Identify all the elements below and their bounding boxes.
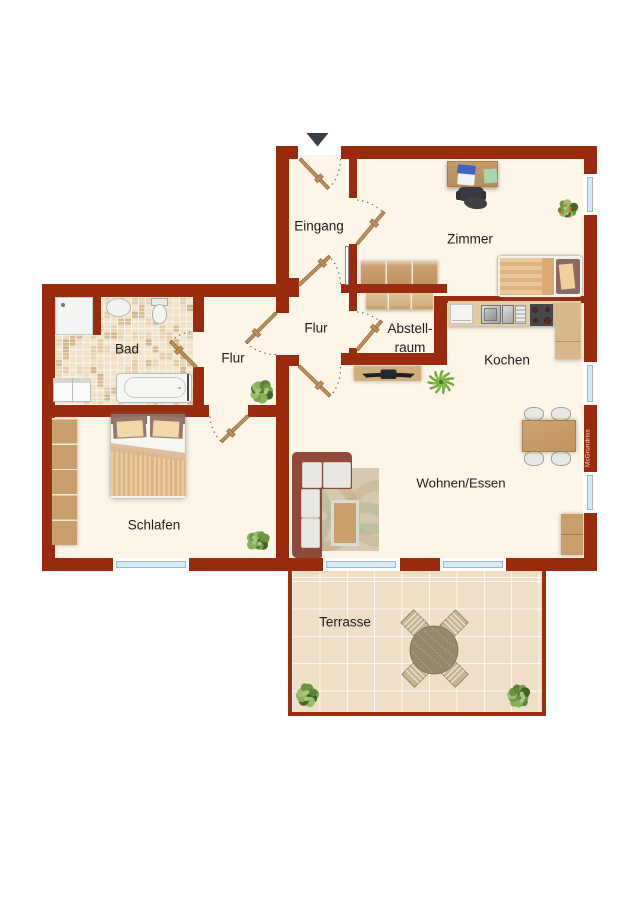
svg-text:McGrundriss: McGrundriss [585, 429, 592, 467]
